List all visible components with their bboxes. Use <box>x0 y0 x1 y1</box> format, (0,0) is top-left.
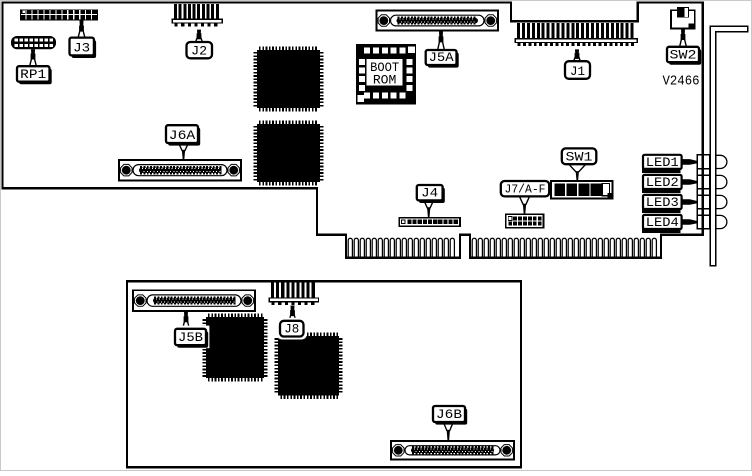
svg-text:J7/A-F: J7/A-F <box>505 183 546 197</box>
svg-text:J6B: J6B <box>436 407 462 422</box>
svg-text:J4: J4 <box>421 186 438 201</box>
svg-text:ROM: ROM <box>373 72 397 87</box>
svg-text:J5B: J5B <box>178 330 203 345</box>
svg-text:LED3: LED3 <box>646 195 679 210</box>
svg-text:LED1: LED1 <box>646 155 679 170</box>
svg-text:LED2: LED2 <box>646 175 679 190</box>
svg-text:RP1: RP1 <box>20 67 46 82</box>
svg-text:SW1: SW1 <box>566 149 593 164</box>
svg-text:J6A: J6A <box>169 128 196 143</box>
svg-text:J5A: J5A <box>429 50 454 65</box>
svg-text:J1: J1 <box>570 64 585 79</box>
svg-text:LED4: LED4 <box>646 215 679 230</box>
svg-text:J2: J2 <box>191 43 207 58</box>
svg-text:SW2: SW2 <box>670 47 697 62</box>
svg-text:J3: J3 <box>73 41 90 56</box>
svg-text:J8: J8 <box>284 322 299 337</box>
svg-text:V2466: V2466 <box>663 75 700 90</box>
